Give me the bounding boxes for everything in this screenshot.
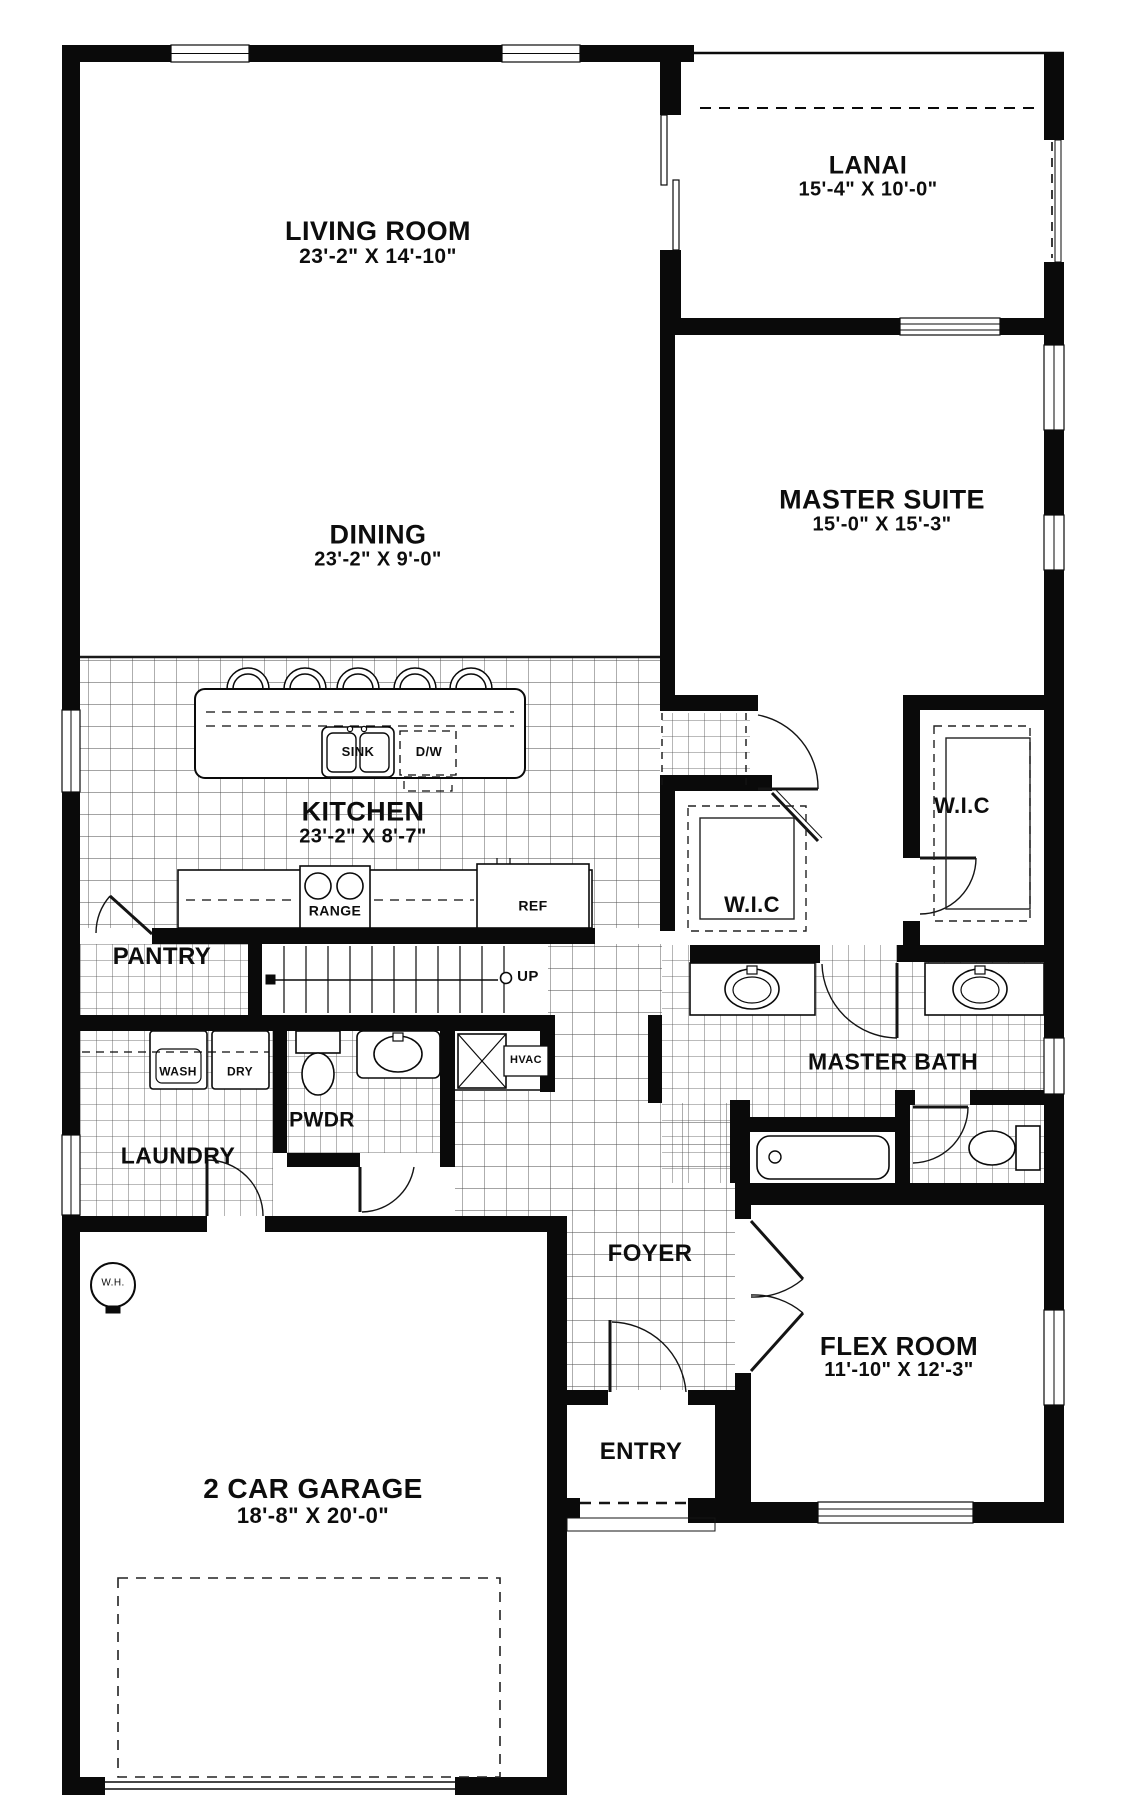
room-label-pantry: PANTRY bbox=[113, 944, 211, 970]
garage-markings bbox=[118, 1578, 500, 1777]
room-label-lanai: LANAI 15'-4" X 10'-0" bbox=[799, 153, 938, 202]
hvac-label: HVAC bbox=[510, 1055, 542, 1067]
staircase bbox=[262, 944, 515, 1015]
floor-plan-drawing bbox=[0, 0, 1124, 1800]
room-label-laundry: LAUNDRY bbox=[121, 1144, 235, 1169]
room-label-master-bath: MASTER BATH bbox=[808, 1050, 978, 1075]
room-label-master-suite: MASTER SUITE 15'-0" X 15'-3" bbox=[779, 486, 985, 537]
room-label-kitchen: KITCHEN 23'-2" X 8'-7" bbox=[299, 798, 426, 849]
refrigerator-label: REF bbox=[518, 898, 547, 913]
room-label-wic-left: W.I.C bbox=[724, 893, 780, 917]
floor-plan-page: LIVING ROOM 23'-2" X 14'-10" LANAI 15'-4… bbox=[0, 0, 1124, 1800]
water-heater-label: W.H. bbox=[101, 1279, 124, 1290]
room-label-dining: DINING 23'-2" X 9'-0" bbox=[314, 521, 441, 572]
room-label-garage: 2 CAR GARAGE 18'-8" X 20'-0" bbox=[203, 1474, 423, 1528]
range-label: RANGE bbox=[309, 903, 362, 918]
sink-label: SINK bbox=[342, 745, 375, 759]
room-label-wic-right: W.I.C bbox=[934, 794, 990, 818]
room-label-pwdr: PWDR bbox=[289, 1110, 355, 1133]
washer-label: WASH bbox=[159, 1066, 197, 1079]
room-label-foyer: FOYER bbox=[608, 1241, 693, 1267]
room-label-living: LIVING ROOM 23'-2" X 14'-10" bbox=[285, 217, 471, 269]
room-label-flex: FLEX ROOM 11'-10" X 12'-3" bbox=[820, 1332, 978, 1382]
room-label-entry: ENTRY bbox=[600, 1439, 682, 1465]
dryer-label: DRY bbox=[227, 1066, 253, 1079]
stairs-up-label: UP bbox=[517, 969, 539, 985]
dishwasher-label: D/W bbox=[416, 745, 442, 759]
